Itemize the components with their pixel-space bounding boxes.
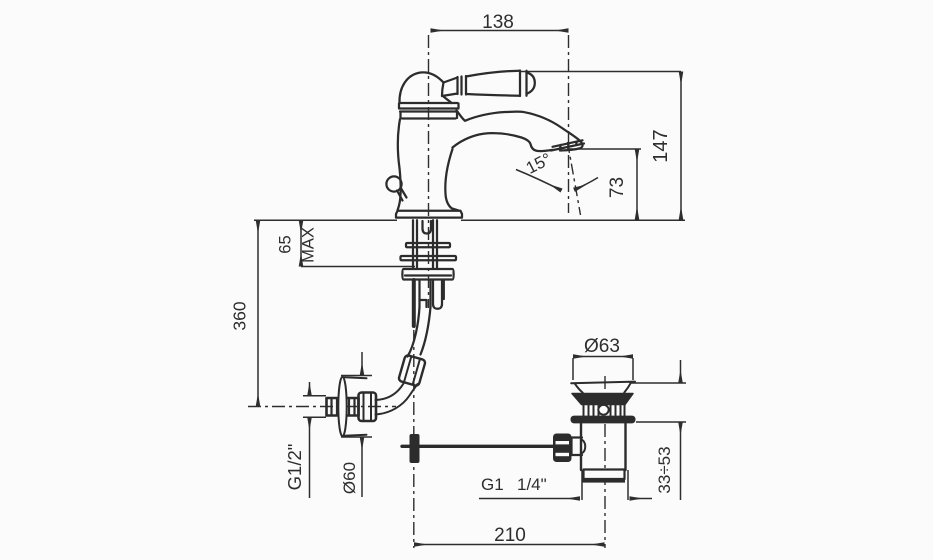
svg-text:73: 73 [607, 177, 628, 198]
svg-text:210: 210 [494, 525, 526, 546]
svg-text:33÷53: 33÷53 [655, 446, 674, 493]
svg-text:Ø63: Ø63 [584, 336, 620, 357]
svg-text:147: 147 [650, 129, 672, 162]
svg-text:1/4": 1/4" [517, 475, 547, 494]
svg-text:MAX: MAX [300, 227, 318, 263]
svg-text:360: 360 [230, 301, 250, 330]
svg-text:Ø60: Ø60 [340, 462, 359, 494]
svg-text:15°: 15° [523, 149, 555, 178]
svg-text:G1: G1 [481, 475, 504, 494]
svg-text:G1/2": G1/2" [284, 444, 305, 491]
svg-text:65: 65 [277, 235, 295, 253]
